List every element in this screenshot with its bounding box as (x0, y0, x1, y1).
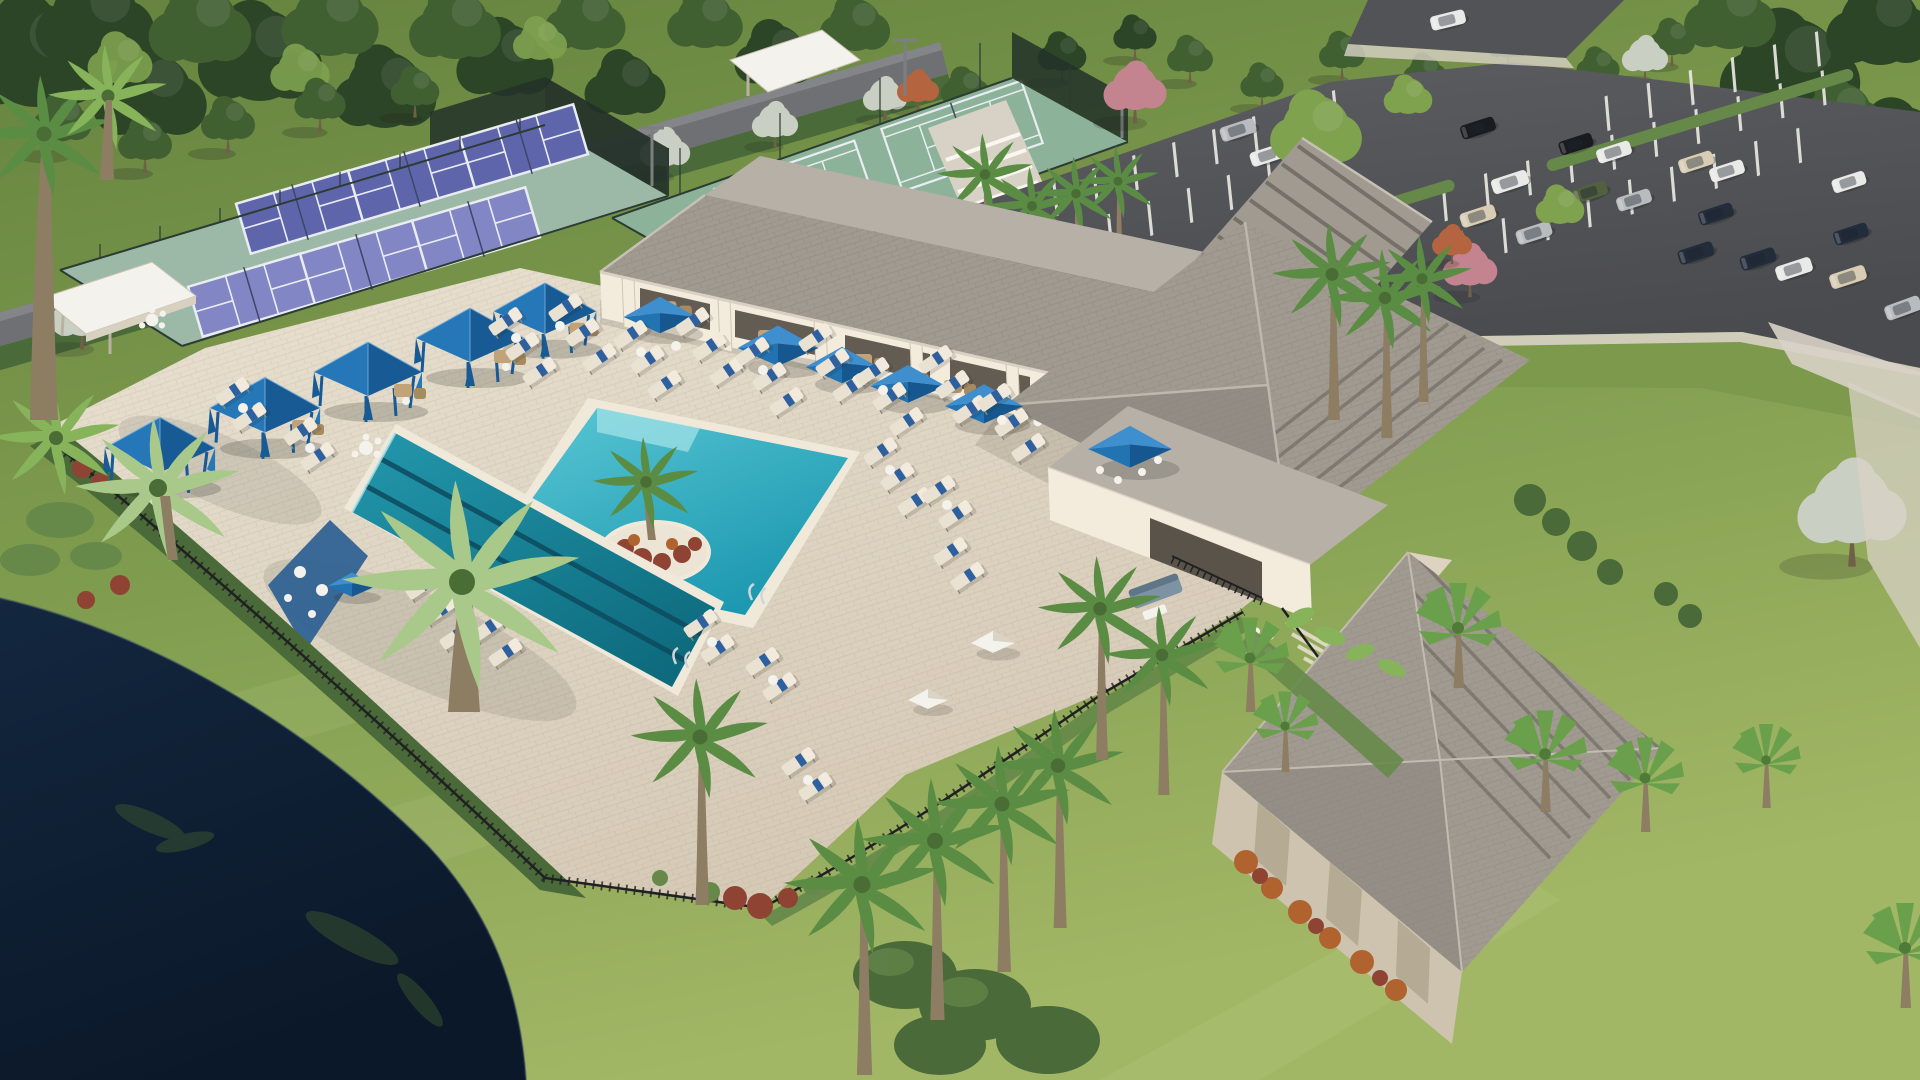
amenity-center-rendering: Aerial rendering of a resort-style commu… (0, 0, 1920, 1080)
rendering-stage: Aerial rendering of a resort-style commu… (0, 0, 1920, 1080)
